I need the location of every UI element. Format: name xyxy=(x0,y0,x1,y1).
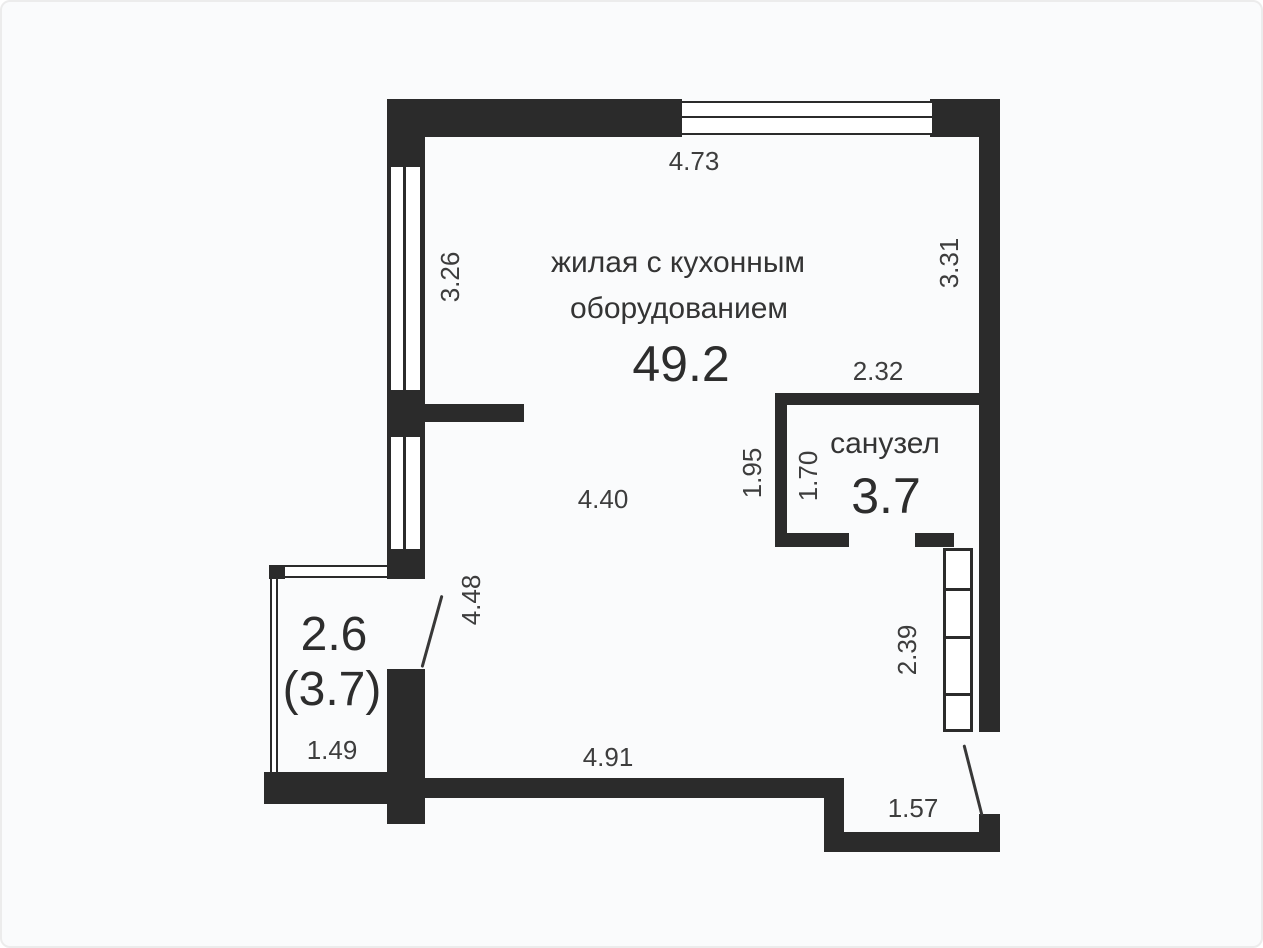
wall-bathroom-bottom xyxy=(775,533,849,547)
dim-room-width-label: 4.40 xyxy=(578,486,629,512)
wall-right-entry-stub xyxy=(979,814,1000,852)
entrance-door-swing-line xyxy=(963,744,984,815)
wall-left-upper xyxy=(387,99,425,167)
wall-bathroom-door-stub xyxy=(915,533,954,547)
window-top xyxy=(682,101,932,135)
dim-bathroom-outer-height-label: 1.95 xyxy=(739,448,765,499)
balcony-window-left xyxy=(270,579,278,772)
bathroom-area: 3.7 xyxy=(851,471,921,521)
dim-bathroom-inner-height-label: 1.70 xyxy=(795,451,821,502)
wall-bottom-main xyxy=(417,778,824,798)
balcony-corner-block xyxy=(269,565,285,579)
window-left-lower xyxy=(387,437,425,549)
wall-right xyxy=(979,99,1000,732)
dim-bathroom-width-label: 2.32 xyxy=(853,358,904,384)
wall-left-mid xyxy=(387,390,425,437)
closet-shaft xyxy=(943,548,973,732)
dim-left-window-height-label: 3.26 xyxy=(437,252,463,303)
dim-balcony-width-label: 1.49 xyxy=(307,737,358,763)
wall-balcony-divider xyxy=(387,669,425,824)
dim-top-width-label: 4.73 xyxy=(669,148,720,174)
main-room-area: 49.2 xyxy=(632,339,729,389)
main-room-name-line1: жилая с кухонным xyxy=(551,248,805,278)
wall-kitchen-stub xyxy=(425,404,524,422)
dim-right-height-label: 3.31 xyxy=(936,238,962,289)
wall-top-left xyxy=(387,99,682,137)
dim-balcony-wall-height-label: 4.48 xyxy=(458,575,484,626)
balcony-area-secondary: (3.7) xyxy=(283,666,382,714)
wall-bathroom-left xyxy=(775,393,787,545)
wall-entrance-bottom xyxy=(824,832,1000,852)
main-room-name-line2: оборудованием xyxy=(570,294,788,324)
dim-closet-height-label: 2.39 xyxy=(894,625,920,676)
wall-left-lower xyxy=(387,549,425,579)
balcony-area: 2.6 xyxy=(301,611,368,659)
balcony-door-swing-line xyxy=(421,595,444,668)
dim-entrance-width-label: 1.57 xyxy=(888,795,939,821)
wall-balcony-bottom xyxy=(264,772,387,804)
floor-plan: жилая с кухонным оборудованием 49.2 сану… xyxy=(0,0,1263,948)
bathroom-name: санузел xyxy=(830,429,940,459)
window-left-upper xyxy=(387,167,425,390)
balcony-window-top xyxy=(285,565,387,578)
wall-bathroom-top xyxy=(775,393,979,405)
dim-bottom-width-label: 4.91 xyxy=(583,744,634,770)
